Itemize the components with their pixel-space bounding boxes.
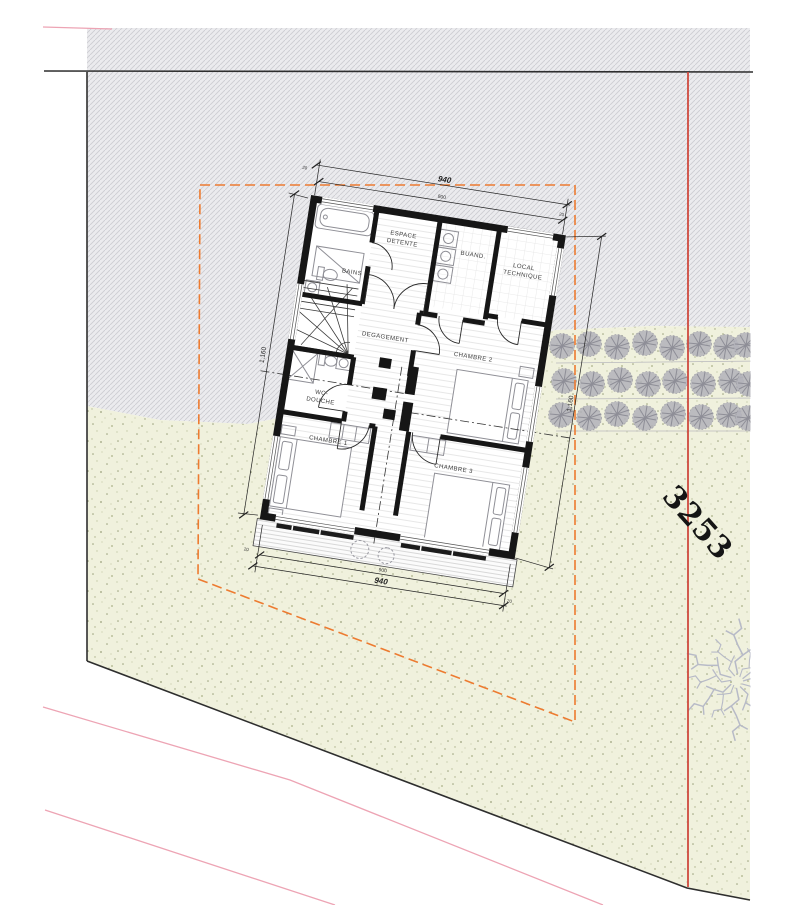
site-plan-drawing: BAINS ESPACE DETENTE BUAND. LOCAL TECHNI… [0, 0, 787, 905]
pink-contour-2 [45, 810, 335, 905]
hedge-rows [549, 331, 763, 432]
boundary-top-line [44, 71, 753, 72]
bed-chambre-3 [424, 473, 509, 550]
right-page-margin [751, 0, 787, 905]
site-plan-canvas: BAINS ESPACE DETENTE BUAND. LOCAL TECHNI… [0, 0, 787, 905]
